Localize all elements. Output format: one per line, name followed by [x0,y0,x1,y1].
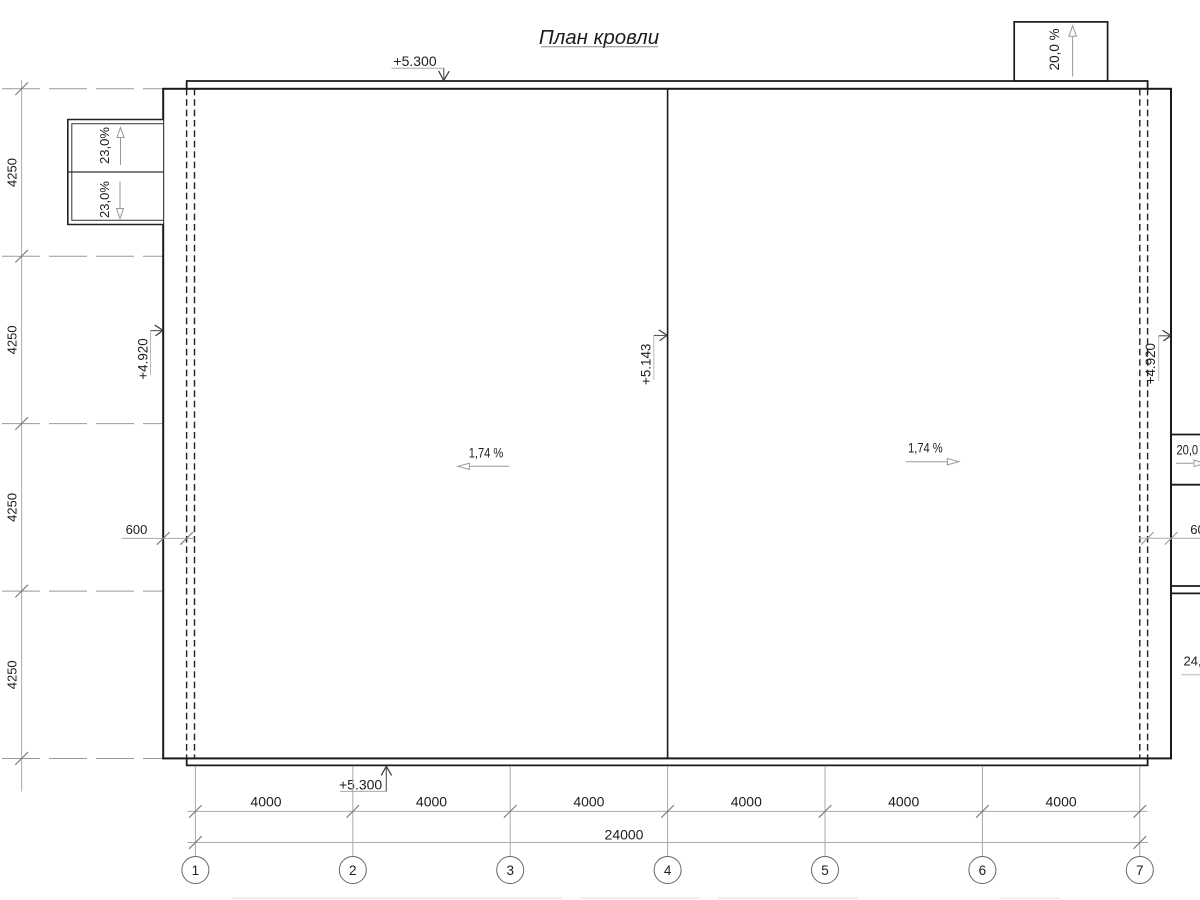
svg-text:20,0 %: 20,0 % [1047,28,1062,70]
svg-text:600: 600 [126,522,148,537]
svg-text:4000: 4000 [573,794,604,810]
svg-text:6: 6 [979,863,987,878]
svg-text:4250: 4250 [4,493,19,522]
svg-text:+4.920: +4.920 [1143,343,1158,384]
svg-text:4250: 4250 [4,660,19,689]
svg-text:4000: 4000 [888,794,919,810]
svg-text:4000: 4000 [1046,794,1077,810]
svg-text:24000: 24000 [605,827,644,843]
svg-text:23,0%: 23,0% [97,181,112,218]
svg-text:600: 600 [1190,522,1200,537]
svg-text:5: 5 [821,863,829,878]
svg-text:План кровли: План кровли [539,26,659,49]
svg-text:1: 1 [192,863,200,878]
svg-text:+5.300: +5.300 [339,777,382,793]
svg-text:24,0: 24,0 [1184,654,1200,669]
svg-text:2: 2 [349,863,357,878]
svg-text:1,74 %: 1,74 % [908,440,943,456]
svg-text:+5.143: +5.143 [639,344,654,385]
svg-text:4: 4 [664,863,672,878]
svg-text:7: 7 [1136,863,1144,878]
svg-text:3: 3 [506,863,514,878]
svg-text:4250: 4250 [4,158,19,187]
svg-text:1,74 %: 1,74 % [469,444,504,460]
svg-text:4250: 4250 [4,325,19,354]
svg-text:23,0%: 23,0% [97,127,112,164]
svg-text:4000: 4000 [250,794,281,810]
svg-text:4000: 4000 [416,794,447,810]
svg-text:4000: 4000 [731,794,762,810]
svg-text:+4.920: +4.920 [136,338,151,379]
svg-text:20,0 %: 20,0 % [1177,442,1200,457]
svg-text:+5.300: +5.300 [393,53,436,69]
